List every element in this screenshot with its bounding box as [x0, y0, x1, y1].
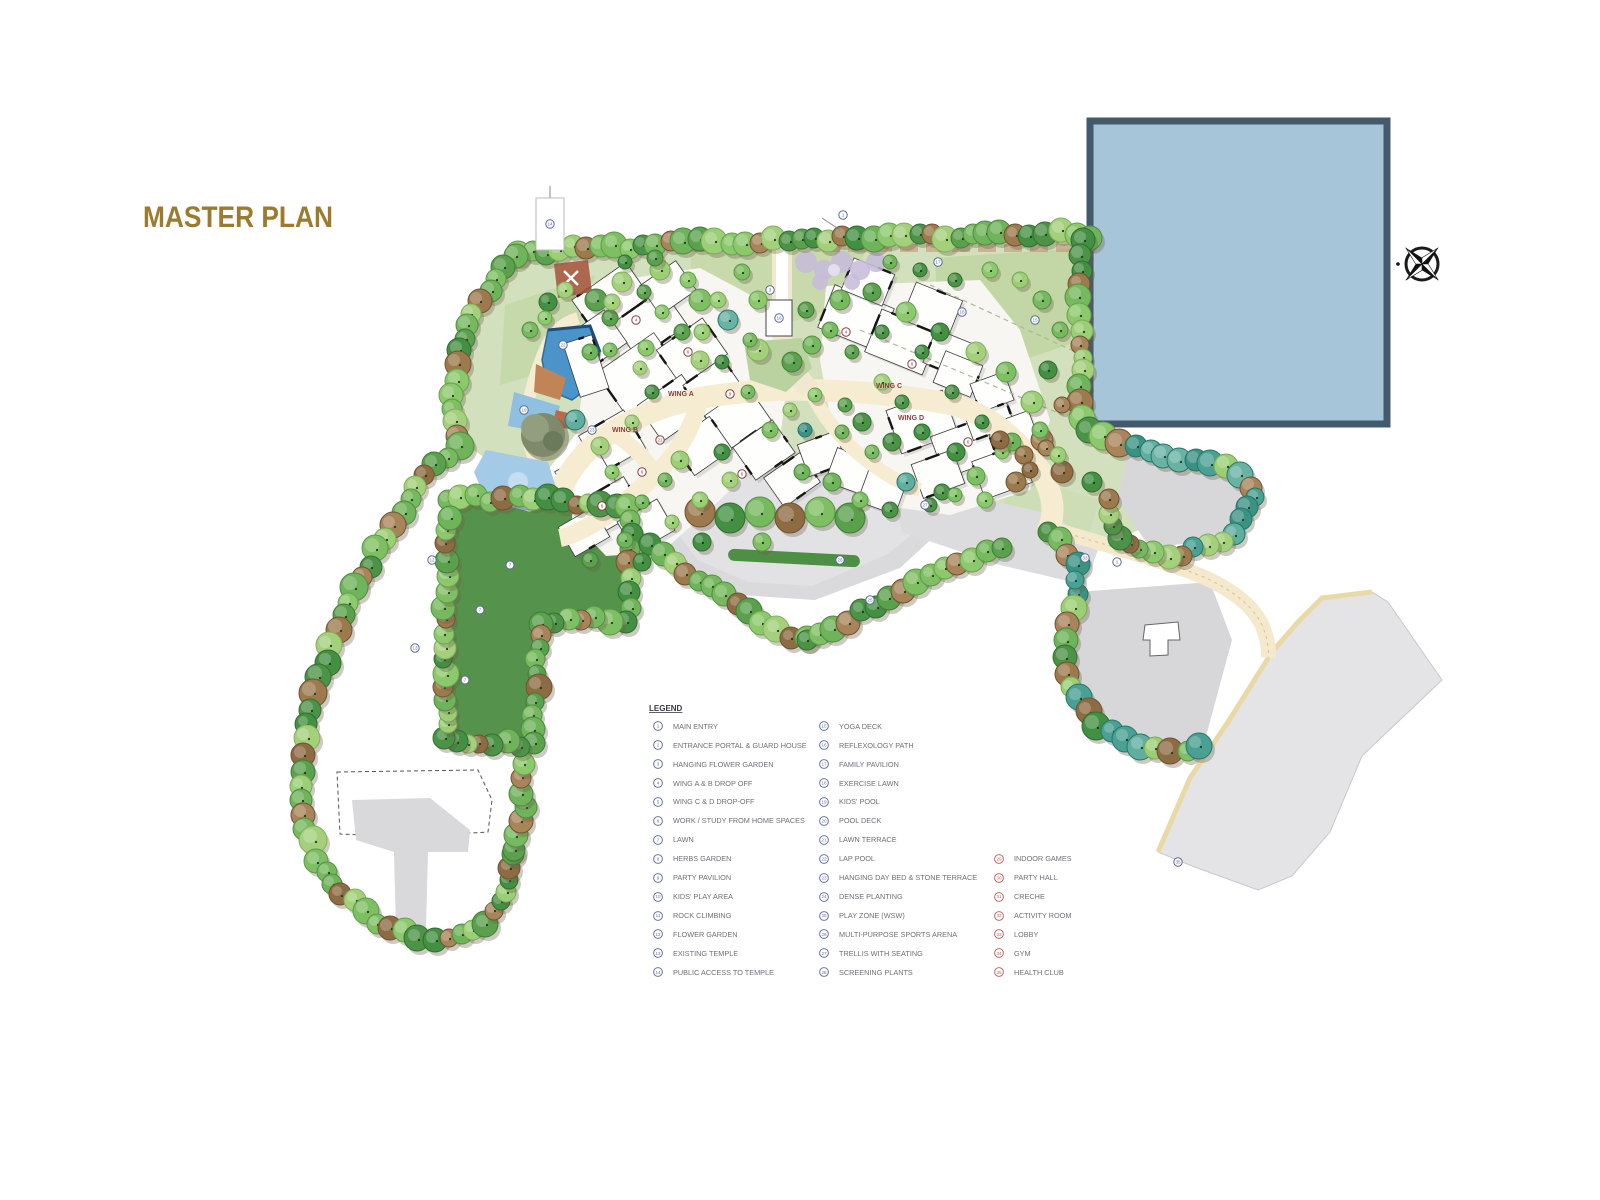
- svg-text:LAWN: LAWN: [673, 835, 694, 844]
- svg-text:33: 33: [1082, 556, 1088, 561]
- svg-text:MULTI-PURPOSE SPORTS ARENA: MULTI-PURPOSE SPORTS ARENA: [839, 930, 957, 939]
- svg-text:31: 31: [996, 894, 1002, 899]
- svg-text:MAIN ENTRY: MAIN ENTRY: [673, 722, 718, 731]
- svg-text:YOGA DECK: YOGA DECK: [839, 722, 882, 731]
- svg-text:32: 32: [996, 913, 1002, 918]
- svg-text:11: 11: [656, 913, 661, 918]
- svg-text:6: 6: [741, 472, 744, 477]
- svg-text:3: 3: [657, 762, 660, 767]
- svg-text:12: 12: [429, 558, 435, 563]
- svg-text:8: 8: [657, 856, 660, 861]
- svg-text:HANGING DAY BED & STONE TERRAC: HANGING DAY BED & STONE TERRACE: [839, 873, 977, 882]
- svg-text:5: 5: [657, 800, 660, 805]
- svg-text:13: 13: [412, 646, 418, 651]
- svg-text:DENSE PLANTING: DENSE PLANTING: [839, 892, 903, 901]
- svg-text:FLOWER GARDEN: FLOWER GARDEN: [673, 930, 737, 939]
- svg-text:3: 3: [769, 288, 772, 293]
- svg-text:18: 18: [821, 781, 827, 786]
- svg-text:9: 9: [657, 875, 660, 880]
- svg-text:9: 9: [729, 392, 732, 397]
- svg-text:1: 1: [1116, 560, 1119, 565]
- svg-text:PLAY ZONE (WSW): PLAY ZONE (WSW): [839, 911, 905, 920]
- svg-text:1: 1: [842, 213, 845, 218]
- svg-text:22: 22: [560, 343, 566, 348]
- svg-text:WING C & D DROP-OFF: WING C & D DROP-OFF: [673, 797, 755, 806]
- svg-text:6: 6: [687, 350, 690, 355]
- svg-text:34: 34: [996, 951, 1002, 956]
- svg-text:10: 10: [655, 894, 661, 899]
- svg-text:23: 23: [821, 875, 827, 880]
- svg-text:27: 27: [922, 503, 928, 508]
- svg-text:6: 6: [911, 362, 914, 367]
- svg-text:4: 4: [635, 318, 638, 323]
- svg-text:GYM: GYM: [1014, 949, 1031, 958]
- svg-text:SCREENING PLANTS: SCREENING PLANTS: [839, 968, 913, 977]
- svg-text:HEALTH CLUB: HEALTH CLUB: [1014, 968, 1064, 977]
- svg-text:23: 23: [589, 428, 595, 433]
- svg-text:PARTY PAVILION: PARTY PAVILION: [673, 873, 731, 882]
- svg-text:17: 17: [821, 762, 827, 767]
- svg-text:MASTER PLAN: MASTER PLAN: [143, 201, 333, 234]
- svg-text:26: 26: [821, 932, 827, 937]
- svg-text:27: 27: [821, 951, 827, 956]
- svg-text:22: 22: [821, 856, 827, 861]
- svg-text:21: 21: [821, 837, 827, 842]
- svg-text:14: 14: [547, 222, 553, 227]
- svg-text:PUBLIC ACCESS TO TEMPLE: PUBLIC ACCESS TO TEMPLE: [673, 968, 774, 977]
- svg-text:2: 2: [657, 743, 660, 748]
- svg-text:16: 16: [776, 316, 782, 321]
- svg-text:WING A: WING A: [668, 391, 694, 398]
- svg-text:18: 18: [959, 310, 965, 315]
- svg-text:12: 12: [655, 932, 661, 937]
- svg-text:20: 20: [821, 818, 827, 823]
- svg-text:EXISTING TEMPLE: EXISTING TEMPLE: [673, 949, 738, 958]
- svg-text:13: 13: [655, 951, 661, 956]
- svg-text:HANGING FLOWER GARDEN: HANGING FLOWER GARDEN: [673, 760, 774, 769]
- svg-text:LOBBY: LOBBY: [1014, 930, 1038, 939]
- svg-text:CRECHE: CRECHE: [1014, 892, 1045, 901]
- svg-text:ENTRANCE PORTAL & GUARD HOUSE: ENTRANCE PORTAL & GUARD HOUSE: [673, 741, 807, 750]
- svg-text:WING A & B DROP OFF: WING A & B DROP OFF: [673, 779, 753, 788]
- svg-text:4: 4: [845, 330, 848, 335]
- svg-text:15: 15: [1032, 318, 1038, 323]
- svg-text:6: 6: [641, 470, 644, 475]
- svg-text:28: 28: [821, 970, 827, 975]
- svg-text:15: 15: [821, 724, 827, 729]
- svg-text:30: 30: [996, 875, 1002, 880]
- svg-text:KIDS' POOL: KIDS' POOL: [839, 797, 880, 806]
- svg-text:24: 24: [821, 894, 827, 899]
- svg-text:14: 14: [655, 970, 661, 975]
- svg-text:POOL DECK: POOL DECK: [839, 816, 881, 825]
- svg-text:35: 35: [996, 970, 1002, 975]
- svg-text:WORK / STUDY FROM HOME SPACES: WORK / STUDY FROM HOME SPACES: [673, 816, 805, 825]
- svg-text:35: 35: [1175, 860, 1181, 865]
- svg-text:HERBS GARDEN: HERBS GARDEN: [673, 854, 731, 863]
- svg-text:29: 29: [996, 856, 1002, 861]
- svg-text:KIDS' PLAY AREA: KIDS' PLAY AREA: [673, 892, 733, 901]
- svg-text:PARTY HALL: PARTY HALL: [1014, 873, 1058, 882]
- svg-text:25: 25: [867, 598, 873, 603]
- svg-text:19: 19: [821, 800, 827, 805]
- svg-text:LAWN TERRACE: LAWN TERRACE: [839, 835, 897, 844]
- svg-text:6: 6: [601, 504, 604, 509]
- svg-text:6: 6: [967, 440, 970, 445]
- svg-text:LEGEND: LEGEND: [649, 704, 683, 713]
- svg-text:WING B: WING B: [612, 427, 638, 434]
- svg-text:TRELLIS WITH SEATING: TRELLIS WITH SEATING: [839, 949, 923, 958]
- svg-text:1: 1: [657, 724, 660, 729]
- svg-text:FAMILY PAVILION: FAMILY PAVILION: [839, 760, 899, 769]
- svg-text:INDOOR GAMES: INDOOR GAMES: [1014, 854, 1072, 863]
- svg-text:16: 16: [821, 743, 827, 748]
- svg-text:WING D: WING D: [898, 415, 924, 422]
- svg-text:7: 7: [657, 837, 660, 842]
- svg-text:21: 21: [657, 438, 663, 443]
- svg-text:4: 4: [657, 781, 660, 786]
- svg-text:WING C: WING C: [876, 383, 902, 390]
- svg-text:6: 6: [657, 818, 660, 823]
- svg-text:17: 17: [935, 260, 941, 265]
- svg-text:26: 26: [837, 558, 843, 563]
- svg-text:REFLEXOLOGY PATH: REFLEXOLOGY PATH: [839, 741, 914, 750]
- svg-text:25: 25: [821, 913, 827, 918]
- svg-text:ACTIVITY ROOM: ACTIVITY ROOM: [1014, 911, 1071, 920]
- svg-text:ROCK CLIMBING: ROCK CLIMBING: [673, 911, 732, 920]
- svg-text:33: 33: [996, 932, 1002, 937]
- svg-text:19: 19: [521, 408, 527, 413]
- svg-text:LAP POOL: LAP POOL: [839, 854, 875, 863]
- svg-text:EXERCISE LAWN: EXERCISE LAWN: [839, 779, 899, 788]
